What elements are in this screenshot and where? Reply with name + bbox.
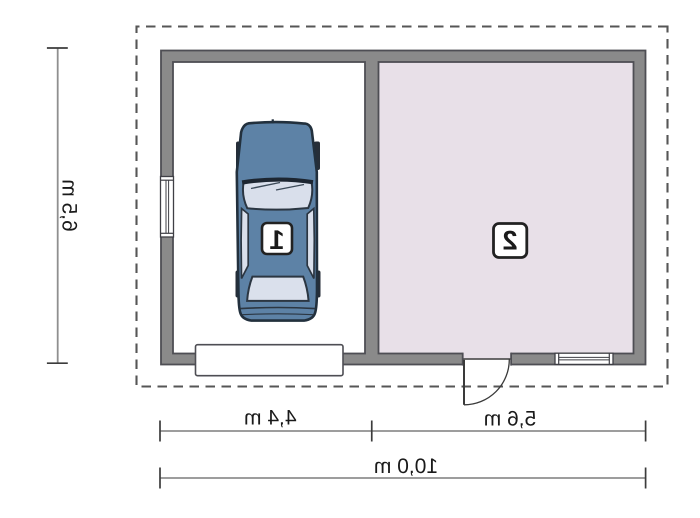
svg-text:10,0 m: 10,0 m <box>374 455 438 478</box>
svg-text:4,4 m: 4,4 m <box>244 406 297 429</box>
svg-text:1: 1 <box>269 225 284 255</box>
svg-text:2: 2 <box>502 226 517 256</box>
svg-text:6,5 m: 6,5 m <box>58 179 81 232</box>
svg-text:5,6 m: 5,6 m <box>484 408 537 431</box>
